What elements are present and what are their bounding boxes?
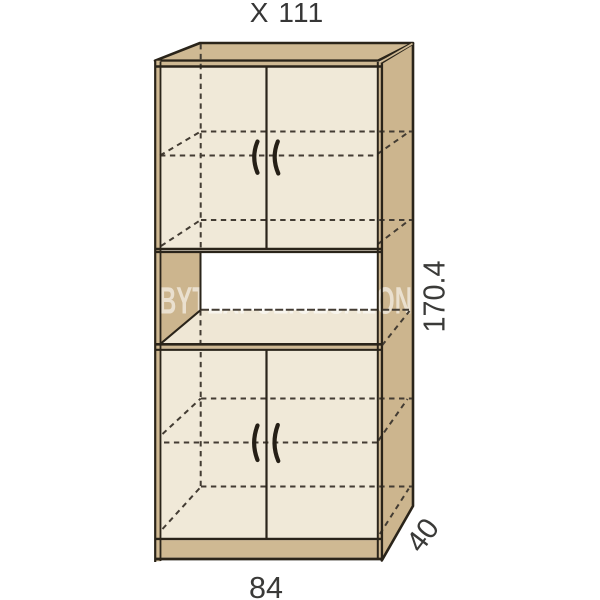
svg-text:X 111: X 111 xyxy=(250,0,325,28)
svg-text:170.4: 170.4 xyxy=(418,260,452,332)
svg-text:BYTEXPOZICESALON: BYTEXPOZICESALON xyxy=(159,281,412,323)
svg-text:84: 84 xyxy=(249,571,283,600)
